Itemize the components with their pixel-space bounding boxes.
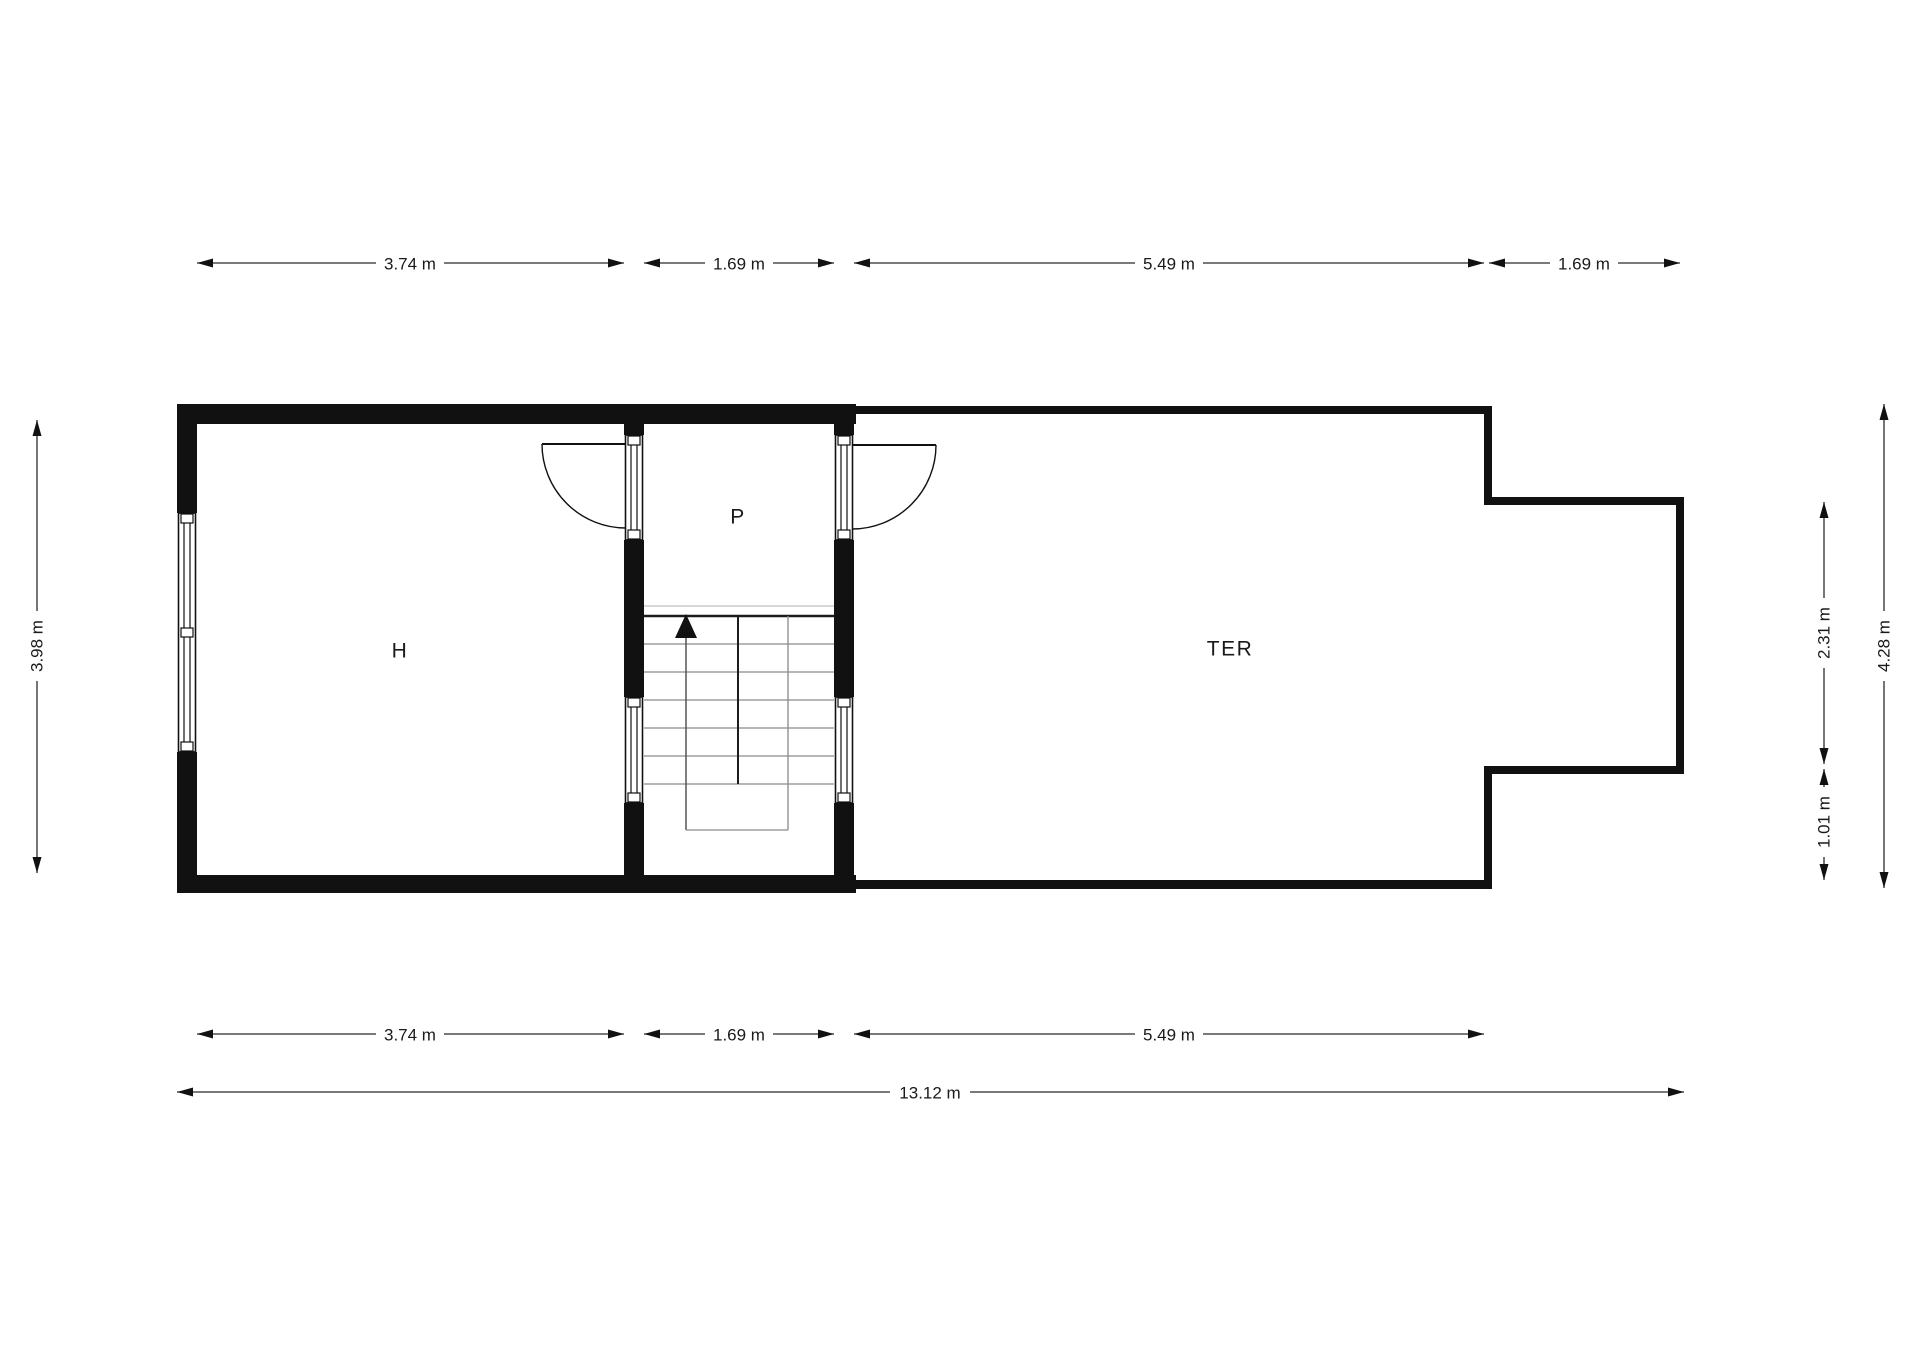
dim-bottom-3-label: 5.49 m	[1143, 1026, 1195, 1045]
dim-top-1-label: 3.74 m	[384, 255, 436, 274]
dim-top-3-label: 5.49 m	[1143, 255, 1195, 274]
floorplan-svg: H P TER 3.74 m 1.69 m 5.49 m 1.69 m 3.74	[0, 0, 1920, 1357]
room-label-h: H	[392, 640, 409, 663]
dim-top-2-label: 1.69 m	[713, 255, 765, 274]
dim-right-lower-label: 1.01 m	[1815, 796, 1834, 848]
door-h-frame	[626, 435, 643, 540]
dim-left-height: 3.98 m	[26, 420, 48, 873]
dim-top-4: 1.69 m	[1489, 252, 1680, 274]
dim-left-height-label: 3.98 m	[28, 620, 47, 672]
wall-hp-bottom	[624, 803, 644, 875]
window-hp-wall	[626, 697, 643, 803]
ter-wall-right-lower	[1484, 766, 1492, 889]
dim-top-3: 5.49 m	[854, 252, 1484, 274]
door-ter-frame	[836, 435, 853, 540]
ter-wall-right-upper	[1484, 406, 1492, 505]
dim-top-4-label: 1.69 m	[1558, 255, 1610, 274]
dim-bottom-1: 3.74 m	[197, 1023, 624, 1045]
ter-wall-bottom	[854, 880, 1484, 889]
dim-bottom-2-label: 1.69 m	[713, 1026, 765, 1045]
window-left	[179, 513, 196, 752]
dim-bottom-2: 1.69 m	[644, 1023, 834, 1045]
wall-hp-stub-top	[624, 424, 644, 435]
wall-hp-mid	[624, 540, 644, 697]
dim-right-notch: 2.31 m	[1813, 502, 1835, 764]
stair-up-arrow-icon	[675, 614, 697, 638]
dim-top-2: 1.69 m	[644, 252, 834, 274]
room-label-ter: TER	[1207, 638, 1254, 661]
dim-bottom-3: 5.49 m	[854, 1023, 1484, 1045]
door-ter-swing-arc	[852, 445, 936, 529]
dim-right-notch-label: 2.31 m	[1815, 607, 1834, 659]
door-ter	[836, 435, 937, 540]
ter-notch-bottom	[1484, 766, 1684, 774]
wall-bottom	[177, 875, 856, 893]
ter-notch-right	[1676, 497, 1684, 774]
window-pt-wall	[836, 697, 853, 803]
dim-overall-width-label: 13.12 m	[899, 1084, 960, 1103]
dim-right-total: 4.28 m	[1873, 404, 1895, 888]
dim-right-lower: 1.01 m	[1813, 769, 1835, 880]
room-label-p: P	[730, 506, 746, 529]
door-h	[542, 435, 643, 540]
wall-pt-stub-top	[834, 424, 854, 435]
wall-left-lower	[177, 752, 197, 875]
staircase	[644, 606, 834, 830]
floorplan-page: H P TER 3.74 m 1.69 m 5.49 m 1.69 m 3.74	[0, 0, 1920, 1357]
door-h-swing-arc	[542, 444, 626, 528]
wall-pt-bottom	[834, 803, 854, 875]
dim-right-total-label: 4.28 m	[1875, 620, 1894, 672]
walls-main-block	[177, 404, 856, 893]
walls-terrace	[854, 406, 1684, 889]
dim-bottom-1-label: 3.74 m	[384, 1026, 436, 1045]
dim-overall-width: 13.12 m	[177, 1081, 1684, 1103]
ter-wall-top	[854, 406, 1484, 414]
wall-top	[177, 404, 856, 424]
wall-pt-mid	[834, 540, 854, 697]
dim-top-1: 3.74 m	[197, 252, 624, 274]
wall-left-upper	[177, 424, 197, 513]
ter-notch-top	[1484, 497, 1684, 505]
